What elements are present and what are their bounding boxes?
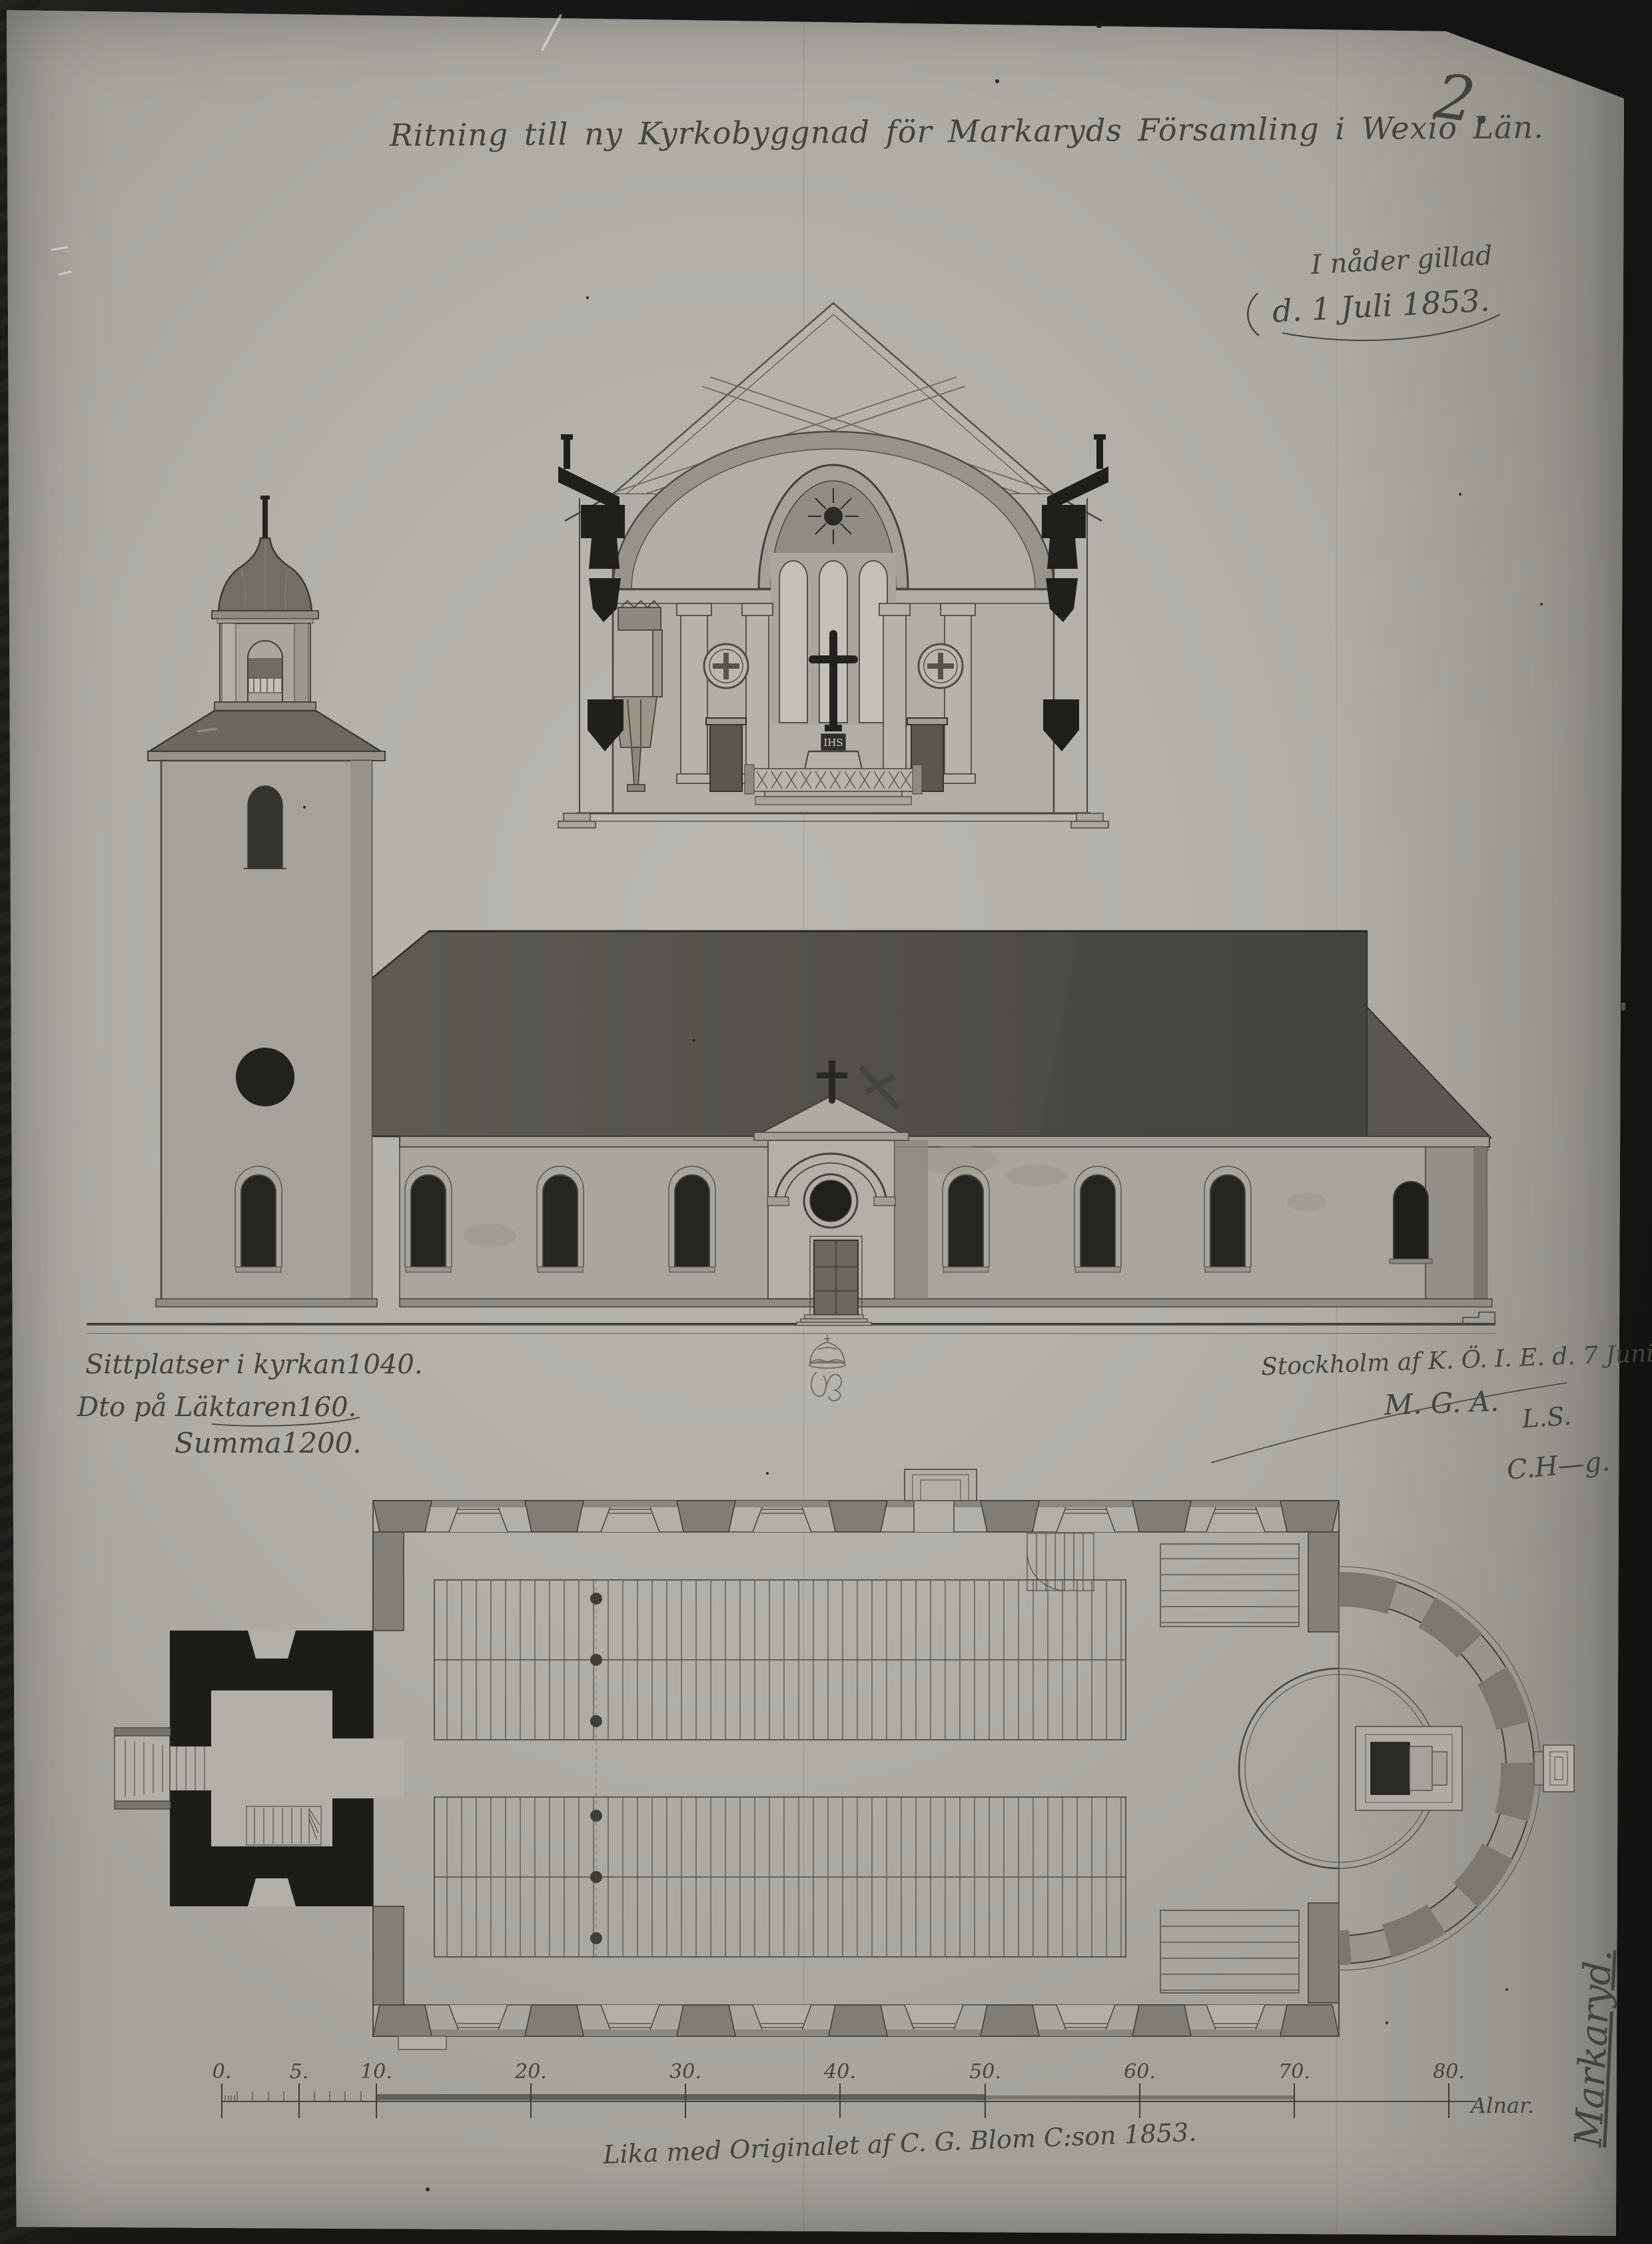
plan-tower-east-doorway (332, 1738, 404, 1798)
seating-total-row: Summa 1200. (175, 1427, 348, 1459)
plan-pews-south (434, 1797, 1126, 1957)
scale-label: 0. (212, 2060, 232, 2083)
lantern-base (214, 702, 316, 711)
scale-label: 30. (669, 2060, 701, 2083)
plan-tower (115, 1631, 404, 1906)
plan-chancel-walls (1308, 1532, 1339, 2003)
eaves-cornice (400, 1136, 1489, 1147)
scale-label: 80. (1433, 2060, 1465, 2083)
cross-section-drawing: IHS (558, 303, 1108, 828)
architectural-drawing-svg: IHS (0, 0, 1652, 2244)
approval-paren (1248, 293, 1259, 336)
tower-clock-opening (236, 1048, 294, 1106)
drawing-content: IHS (0, 0, 1652, 2244)
plan-entrance-stair (115, 1728, 171, 1809)
signature-initials: L.S. (1521, 1401, 1573, 1433)
seating-row: Dto på Läktaren 160. (77, 1392, 352, 1423)
lantern-opening (248, 658, 282, 678)
plan-south-projection (398, 2036, 446, 2050)
seating-value: 1040. (346, 1349, 423, 1380)
seating-total-label: Summa (175, 1427, 282, 1459)
tower-plinth (156, 1299, 377, 1307)
church-tower (148, 496, 385, 1307)
scale-labels: 0. 5. 10. 20. 30. 40. 50. 60. 70. 80. Al… (212, 2060, 1534, 2118)
portal-shadow (895, 1140, 928, 1299)
lantern-cornice (212, 611, 318, 619)
seating-label: Dto på Läktaren (77, 1392, 297, 1423)
page-number: 2. (1431, 60, 1499, 139)
scale-label: 5. (290, 2060, 309, 2083)
plan-altar (1356, 1726, 1462, 1810)
apse-roof (1367, 1007, 1491, 1138)
plan-vestibule-stair (246, 1806, 321, 1845)
scale-label: 50. (969, 2060, 1001, 2083)
tower-shaft-shade (350, 761, 372, 1306)
dust-specks (0, 0, 3, 3)
photograph-frame: IHS (0, 0, 1652, 2244)
issuance-line2: M. G. A. (1384, 1385, 1499, 1421)
tower-eave-cornice (148, 751, 385, 761)
plinth (400, 1299, 1492, 1307)
floor-plan-drawing (115, 1469, 1574, 2050)
altar-inscription: IHS (823, 737, 843, 749)
scale-label: 40. (823, 2060, 856, 2083)
plan-west-doorway (170, 1746, 211, 1790)
section-end-steps (558, 813, 1108, 828)
scale-minor-ticks (225, 2091, 361, 2102)
portal-steps (797, 1315, 871, 1325)
tower-pyramid-roof (149, 711, 381, 751)
plan-chancel-pews (1160, 1544, 1299, 1993)
altar-step (755, 797, 911, 805)
scale-bar: 0. 5. 10. 20. 30. 40. 50. 60. 70. 80. Al… (212, 2060, 1534, 2118)
apse-window (1390, 1182, 1432, 1264)
tower-belfry-window (248, 786, 282, 869)
seating-row: Sittplatser i kyrkan 1040. (85, 1349, 352, 1380)
apse-wall-shadow (1473, 1147, 1487, 1299)
seating-total-value: 1200. (282, 1427, 362, 1459)
seating-value: 160. (297, 1392, 356, 1423)
scratch-mark (1621, 1002, 1625, 1010)
plan-east-porch (1534, 1745, 1574, 1792)
scale-label: 70. (1278, 2060, 1310, 2083)
scale-label: 20. (514, 2060, 547, 2083)
scale-label: 10. (360, 2060, 392, 2083)
plan-side-porch (905, 1469, 977, 1532)
altar-rail (745, 765, 922, 794)
crown-monogram (809, 1335, 845, 1401)
seating-label: Sittplatser i kyrkan (85, 1349, 346, 1380)
plan-pews-north (434, 1580, 1126, 1740)
apse-end-steps (1463, 1312, 1495, 1324)
plan-tower-north-recess (248, 1631, 296, 1659)
scale-unit-label: Alnar. (1469, 2093, 1534, 2118)
plan-tower-south-recess (248, 1878, 296, 1906)
scale-label: 60. (1124, 2060, 1156, 2083)
